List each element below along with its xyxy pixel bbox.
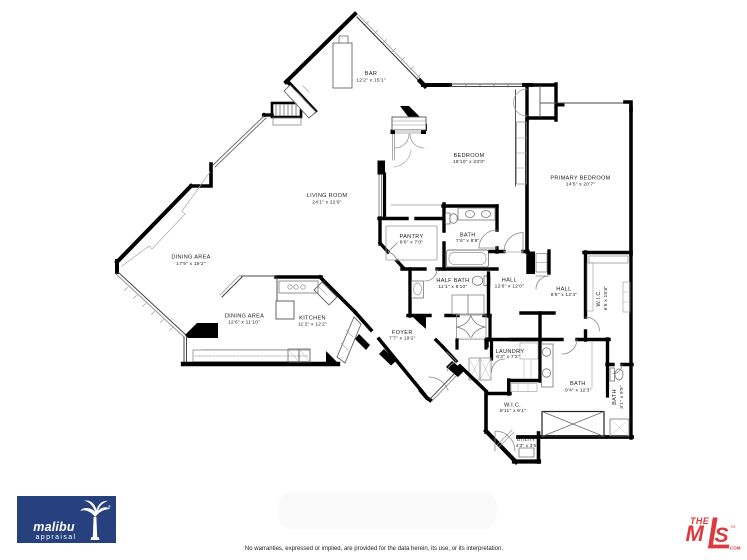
svg-text:M: M [686, 521, 705, 546]
svg-text:BATH: BATH [460, 233, 476, 239]
svg-text:11'1" x 5'10": 11'1" x 5'10" [438, 284, 467, 290]
svg-text:11'2" x 12'2": 11'2" x 12'2" [298, 322, 327, 328]
svg-text:No warranties, expressed or im: No warranties, expressed or implied, are… [245, 546, 503, 552]
svg-text:8'11" x 9'1": 8'11" x 9'1" [500, 408, 526, 414]
svg-text:BEDROOM: BEDROOM [453, 153, 484, 159]
svg-text:6'5 x 15'8": 6'5 x 15'8" [603, 286, 609, 311]
svg-text:7'7" x 19'2": 7'7" x 19'2" [389, 335, 416, 341]
svg-text:appraisal: appraisal [35, 534, 76, 541]
svg-text:BATH: BATH [612, 389, 618, 405]
svg-text:12'6" x 11'10": 12'6" x 11'10" [228, 320, 260, 326]
svg-text:4'3" x 3'5": 4'3" x 3'5" [516, 443, 538, 448]
svg-text:12'2" x 15'1": 12'2" x 15'1" [356, 78, 385, 84]
svg-text:KITCHEN: KITCHEN [299, 315, 326, 321]
svg-text:S: S [715, 524, 729, 547]
svg-text:DINING AREA: DINING AREA [225, 314, 264, 320]
svg-text:®: ® [108, 504, 111, 509]
svg-text:3'1" x 9'9": 3'1" x 9'9" [619, 385, 625, 409]
svg-text:17'9" x 19'2": 17'9" x 19'2" [176, 261, 205, 267]
svg-text:19'10" x 23'0": 19'10" x 23'0" [453, 159, 485, 165]
svg-text:14'5" x 20'7": 14'5" x 20'7" [566, 182, 595, 188]
svg-text:6'3" x 7'2": 6'3" x 7'2" [496, 354, 520, 360]
svg-text:LAUNDRY: LAUNDRY [496, 349, 525, 355]
svg-text:HALL: HALL [502, 277, 517, 283]
svg-text:BAR: BAR [365, 71, 377, 77]
svg-text:TM: TM [730, 525, 735, 529]
svg-text:.COM: .COM [729, 546, 741, 551]
svg-text:PANTRY: PANTRY [400, 234, 424, 240]
svg-text:24'1" x 22'9": 24'1" x 22'9" [312, 200, 341, 206]
svg-text:malibu: malibu [33, 520, 75, 534]
svg-text:DINING AREA: DINING AREA [171, 255, 210, 261]
svg-text:7'6" x 8'8": 7'6" x 8'8" [456, 238, 480, 244]
svg-text:8'9" x 12'4": 8'9" x 12'4" [551, 292, 578, 298]
svg-text:W.I.C.: W.I.C. [596, 289, 602, 306]
svg-text:FOYER: FOYER [392, 330, 413, 336]
svg-text:HALF BATH: HALF BATH [436, 278, 469, 284]
svg-text:UTILITY: UTILITY [517, 437, 536, 442]
svg-text:9'4" x 12'3": 9'4" x 12'3" [565, 387, 592, 393]
svg-text:LIVING ROOM: LIVING ROOM [307, 193, 348, 199]
svg-text:W.I.C.: W.I.C. [504, 403, 521, 409]
svg-text:PRIMARY BEDROOM: PRIMARY BEDROOM [550, 176, 610, 182]
svg-text:HALL: HALL [556, 287, 571, 293]
svg-text:12'6" x 12'0": 12'6" x 12'0" [495, 283, 524, 289]
svg-text:8'6" x 7'0": 8'6" x 7'0" [400, 240, 424, 246]
svg-text:BATH: BATH [570, 381, 586, 387]
